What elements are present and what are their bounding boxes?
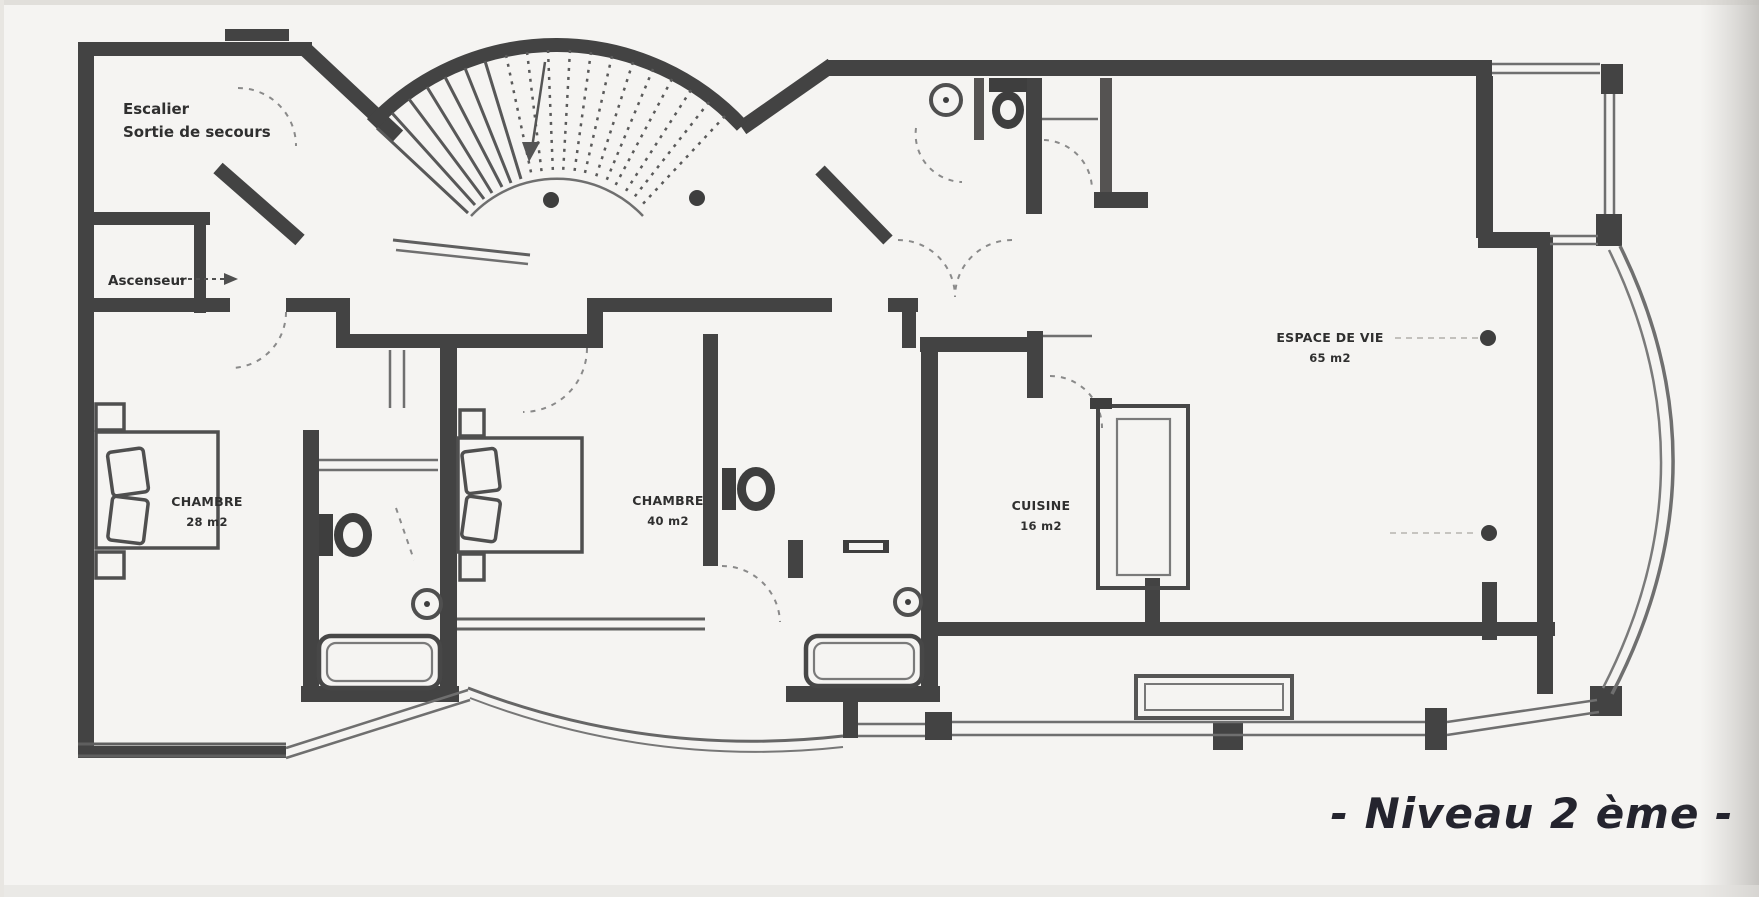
- wall-topleft: [78, 42, 312, 56]
- bath2-shelf-inner: [849, 543, 883, 550]
- bedroom1-area: 28 m2: [186, 515, 228, 529]
- column-dot: [689, 190, 705, 206]
- wall-bath2-bottom: [786, 686, 940, 702]
- wall-wc-partition: [974, 78, 984, 140]
- wall-post-3: [1027, 331, 1043, 352]
- wall-terrace-left: [843, 686, 858, 738]
- scan-edge-top: [0, 0, 1759, 5]
- level-caption: - Niveau 2 ème -: [1331, 789, 1734, 838]
- toilet-icon: [722, 468, 736, 510]
- toilet-icon: [319, 514, 333, 556]
- sink-drain: [905, 599, 911, 605]
- wall-corridor-c: [587, 298, 832, 312]
- column-dot: [543, 192, 559, 208]
- bedroom2-name: CHAMBRE: [632, 493, 704, 508]
- living-name: ESPACE DE VIE: [1276, 330, 1383, 345]
- scan-edge-right: [1700, 0, 1759, 897]
- wall-living-bottom: [938, 622, 1555, 636]
- wall-bedroomrow-top: [350, 334, 590, 348]
- terrace-post-1: [925, 712, 952, 740]
- wall-living-stub: [1482, 582, 1497, 640]
- kitchen-area: 16 m2: [1020, 519, 1062, 533]
- sink-drain: [424, 601, 430, 607]
- wall-bath2-left: [703, 334, 718, 566]
- elevator-label: Ascenseur: [108, 273, 187, 289]
- column-dot: [1480, 330, 1496, 346]
- column-dot: [1481, 525, 1497, 541]
- wall-stairroom-bottom: [94, 212, 210, 225]
- stairwell-label-line2: Sortie de secours: [123, 123, 271, 141]
- wall-left-outer: [78, 42, 94, 758]
- floor-plan-drawing: Escalier Sortie de secours Ascenseur CHA…: [0, 0, 1759, 897]
- wall-bath1-left: [303, 430, 319, 702]
- wall-corridor-jog: [336, 298, 350, 348]
- stairwell-label-line1: Escalier: [123, 100, 190, 118]
- wall-topright-corner: [1476, 76, 1493, 238]
- terrace-post-3: [1425, 708, 1447, 750]
- toilet-icon: [989, 78, 1027, 92]
- bedroom1-name: CHAMBRE: [171, 494, 243, 509]
- toilet-bowl-inner: [1000, 100, 1016, 120]
- wall-bath1-right: [440, 334, 457, 702]
- kitchen-counter-stub: [1090, 398, 1112, 409]
- living-area: 65 m2: [1309, 351, 1351, 365]
- wall-post-2: [902, 298, 916, 348]
- kitchen-name: CUISINE: [1012, 498, 1071, 513]
- wall-post-baytop-a: [1601, 64, 1623, 94]
- wall-kitchen-top: [920, 337, 1028, 352]
- floor-plan-scan: Escalier Sortie de secours Ascenseur CHA…: [0, 0, 1759, 897]
- wall-living-right: [1537, 237, 1553, 694]
- wall-topleft-notch: [225, 29, 289, 41]
- toilet-bowl-inner: [746, 476, 766, 502]
- scan-edge-bottom: [0, 885, 1759, 897]
- wall-hall-stub: [1094, 192, 1148, 208]
- bedroom2-area: 40 m2: [647, 514, 689, 528]
- wall-kitchen-jamb: [1027, 352, 1043, 398]
- wall-hall-thin: [1100, 78, 1112, 196]
- wall-wc-right: [1026, 78, 1042, 214]
- scan-edge-left: [0, 0, 4, 897]
- wall-counter-stub: [1145, 578, 1160, 628]
- wall-post-baytop-b: [1596, 214, 1622, 246]
- sink-drain: [943, 97, 949, 103]
- wall-bath2-stub: [788, 540, 803, 578]
- toilet-bowl-inner: [343, 522, 363, 548]
- wall-top-main: [826, 60, 1492, 76]
- wall-corridor-a: [94, 298, 230, 312]
